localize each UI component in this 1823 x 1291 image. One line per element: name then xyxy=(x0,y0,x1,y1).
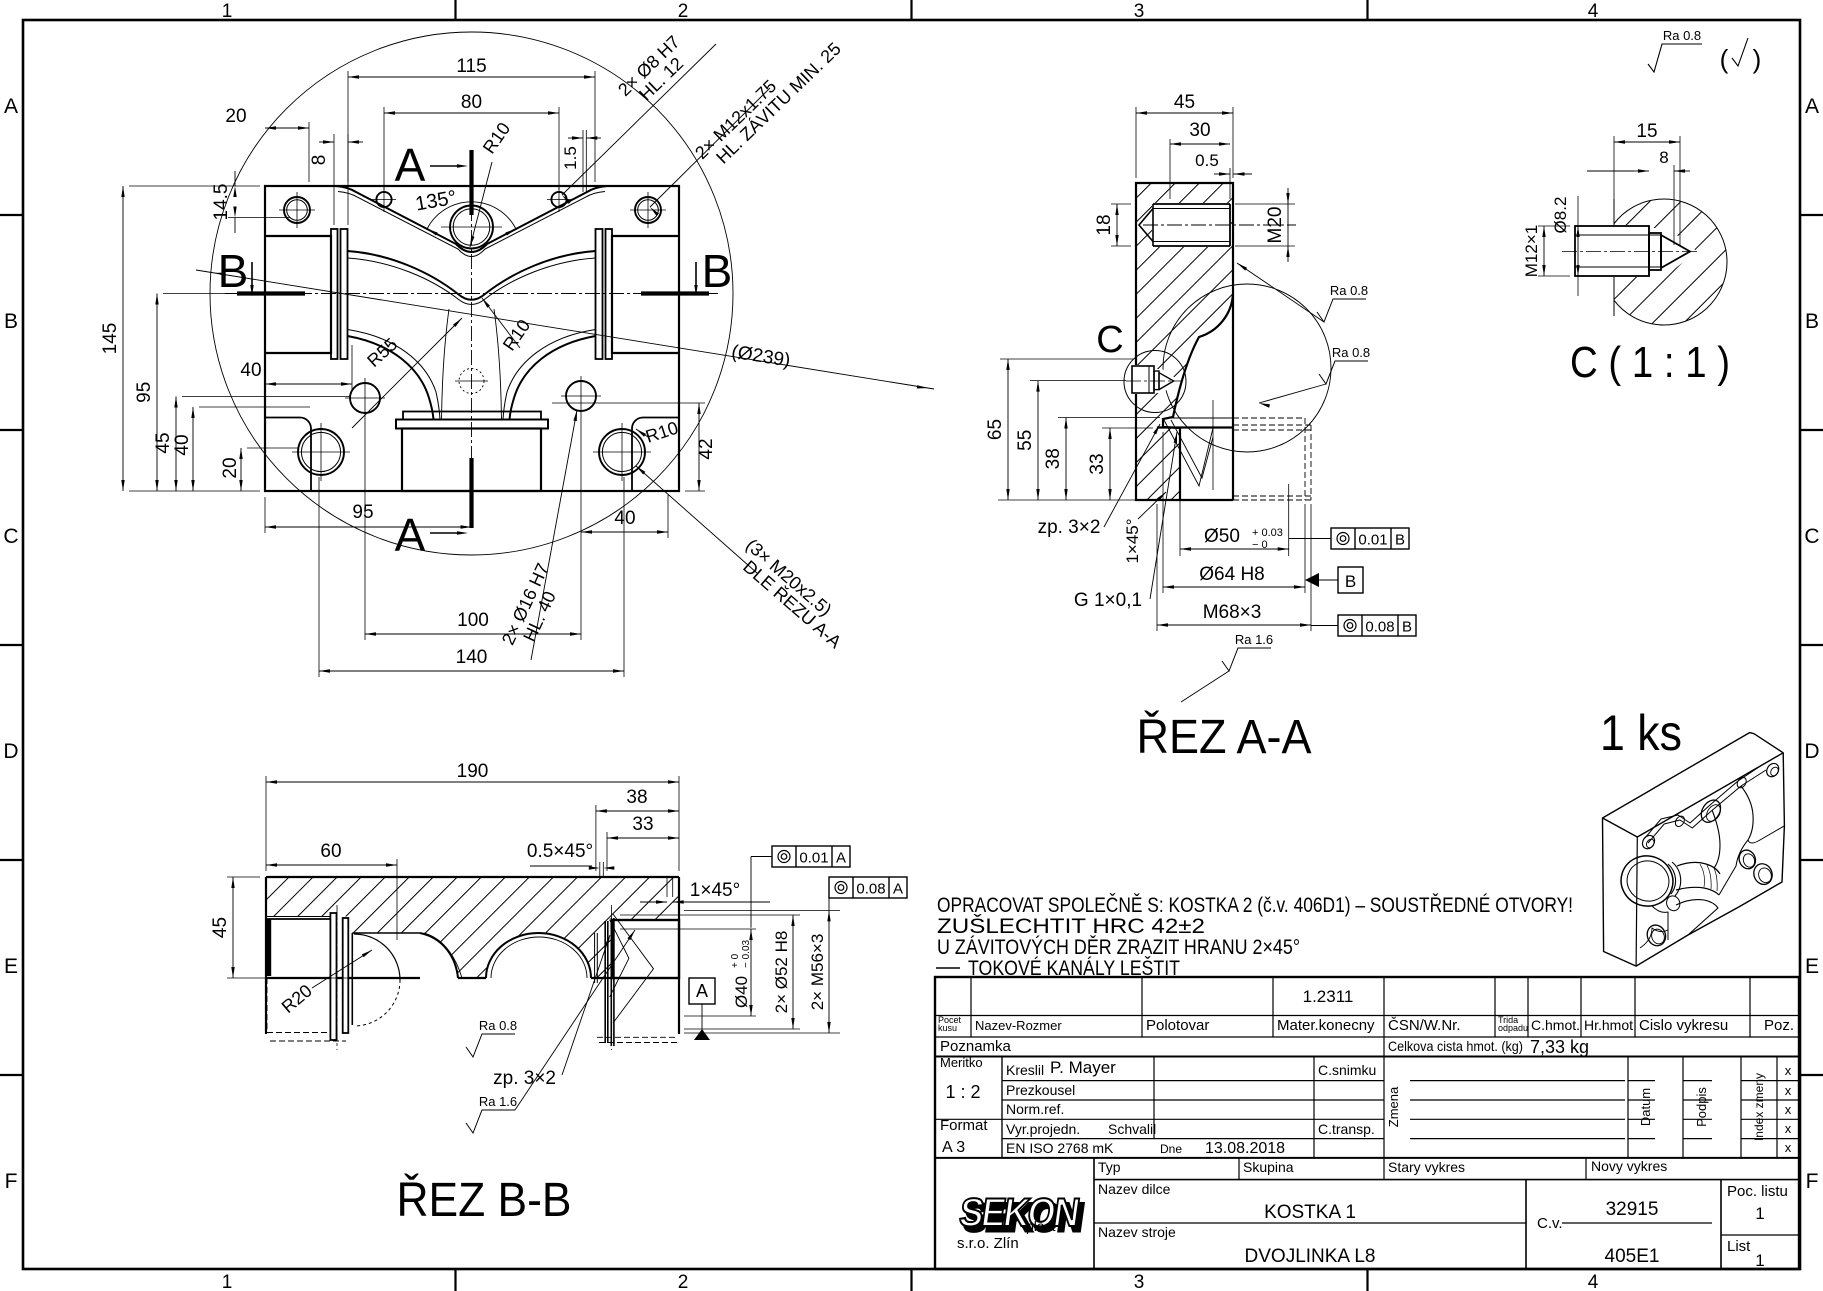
svg-text:1.5: 1.5 xyxy=(561,146,580,170)
svg-text:Nazev stroje: Nazev stroje xyxy=(1098,1224,1176,1240)
svg-text:0.08: 0.08 xyxy=(856,881,885,898)
svg-text:A 3: A 3 xyxy=(942,1139,965,1156)
svg-text:60: 60 xyxy=(320,841,341,862)
svg-text:20: 20 xyxy=(220,457,241,478)
svg-text:Ra 1.6: Ra 1.6 xyxy=(479,1094,517,1109)
svg-text:33: 33 xyxy=(1087,453,1108,474)
svg-text:Ra 0.8: Ra 0.8 xyxy=(1332,345,1370,360)
svg-text:DVOJLINKA L8: DVOJLINKA L8 xyxy=(1245,1246,1376,1267)
svg-text:45: 45 xyxy=(1174,92,1195,113)
svg-text:1.2311: 1.2311 xyxy=(1303,987,1354,1006)
svg-text:8: 8 xyxy=(309,155,330,166)
svg-text:Cislo vykresu: Cislo vykresu xyxy=(1639,1017,1728,1034)
svg-text:(: ( xyxy=(1720,44,1729,74)
svg-text:Ø8.2: Ø8.2 xyxy=(1551,197,1570,234)
svg-text:C.snimku: C.snimku xyxy=(1318,1062,1376,1078)
svg-text:1×45°: 1×45° xyxy=(1123,518,1142,563)
svg-text:1: 1 xyxy=(222,1272,233,1291)
svg-text:B: B xyxy=(1402,619,1412,636)
svg-text:B: B xyxy=(4,310,18,333)
svg-text:2: 2 xyxy=(678,1,689,22)
svg-text:1 ks: 1 ks xyxy=(1600,705,1682,761)
svg-text:C.transp.: C.transp. xyxy=(1318,1121,1375,1137)
svg-text:42: 42 xyxy=(696,438,717,459)
svg-text:M12×1: M12×1 xyxy=(1522,225,1541,277)
svg-text:x: x xyxy=(1785,1140,1792,1155)
svg-text:0.01: 0.01 xyxy=(1358,532,1387,549)
svg-text:Prezkousel: Prezkousel xyxy=(1006,1082,1075,1098)
svg-text:0.08: 0.08 xyxy=(1365,619,1394,636)
svg-text:65: 65 xyxy=(985,419,1006,440)
svg-text:plast: plast xyxy=(1026,1218,1056,1234)
svg-text:A: A xyxy=(4,95,18,118)
svg-text:115: 115 xyxy=(456,56,486,77)
svg-text:B: B xyxy=(1345,572,1356,591)
svg-text:0.5×45°: 0.5×45° xyxy=(527,841,593,862)
svg-text:D: D xyxy=(1804,740,1819,763)
svg-text:Poc. listu: Poc. listu xyxy=(1727,1183,1788,1200)
svg-text:190: 190 xyxy=(457,761,489,782)
svg-text:s.r.o. Zlín: s.r.o. Zlín xyxy=(957,1235,1019,1252)
svg-text:Format: Format xyxy=(940,1117,988,1134)
svg-text:zp. 3×2: zp. 3×2 xyxy=(493,1068,556,1089)
svg-text:E: E xyxy=(4,955,18,978)
svg-text:ZUŠLECHTIT HRC 42±2: ZUŠLECHTIT HRC 42±2 xyxy=(937,915,1205,938)
svg-text:C.v.: C.v. xyxy=(1537,1215,1563,1232)
svg-text:Norm.ref.: Norm.ref. xyxy=(1006,1101,1064,1117)
svg-text:38: 38 xyxy=(626,787,647,808)
svg-text:E: E xyxy=(1805,955,1819,978)
svg-text:Ø40: Ø40 xyxy=(732,976,751,1008)
svg-text:zp. 3×2: zp. 3×2 xyxy=(1038,517,1101,538)
svg-text:80: 80 xyxy=(461,92,482,113)
svg-text:40: 40 xyxy=(614,508,635,529)
svg-text:45: 45 xyxy=(153,432,174,453)
svg-text:Datum: Datum xyxy=(1638,1088,1653,1126)
svg-text:OPRACOVAT SPOLEČNĚ S: KOSTKA 2: OPRACOVAT SPOLEČNĚ S: KOSTKA 2 (č.v. 406… xyxy=(937,894,1573,917)
svg-text:odpadu: odpadu xyxy=(1498,1023,1528,1033)
svg-text:Kreslil: Kreslil xyxy=(1006,1062,1044,1078)
svg-text:Ra 1.6: Ra 1.6 xyxy=(1235,632,1273,647)
svg-text:ČSN/W.Nr.: ČSN/W.Nr. xyxy=(1388,1017,1461,1034)
svg-text:C: C xyxy=(1804,525,1819,548)
svg-text:Stary vykres: Stary vykres xyxy=(1388,1159,1465,1175)
svg-text:14.5: 14.5 xyxy=(211,184,232,221)
svg-text:List: List xyxy=(1727,1238,1751,1255)
svg-text:Zmena: Zmena xyxy=(1386,1086,1401,1127)
svg-text:Index zmeny: Index zmeny xyxy=(1752,1073,1766,1141)
svg-text:Ra 0.8: Ra 0.8 xyxy=(1663,28,1701,43)
svg-text:P. Mayer: P. Mayer xyxy=(1050,1058,1116,1077)
svg-text:SEKON: SEKON xyxy=(957,1190,1081,1235)
svg-text:C: C xyxy=(3,525,18,548)
svg-text:95: 95 xyxy=(134,382,155,403)
svg-text:EN ISO 2768 mK: EN ISO 2768 mK xyxy=(1006,1140,1114,1156)
svg-text:140: 140 xyxy=(456,647,488,668)
svg-text:Ra 0.8: Ra 0.8 xyxy=(479,1018,517,1033)
svg-text:Nazev-Rozmer: Nazev-Rozmer xyxy=(975,1018,1062,1033)
svg-text:405E1: 405E1 xyxy=(1605,1246,1660,1267)
svg-text:4: 4 xyxy=(1588,1272,1599,1291)
svg-text:13.08.2018: 13.08.2018 xyxy=(1205,1140,1285,1157)
svg-text:A: A xyxy=(395,139,426,191)
svg-text:): ) xyxy=(1753,44,1762,74)
svg-text:55: 55 xyxy=(1015,430,1036,451)
svg-text:2× M56×3: 2× M56×3 xyxy=(808,934,827,1011)
svg-text:Poznamka: Poznamka xyxy=(940,1038,1012,1055)
svg-text:Typ: Typ xyxy=(1098,1159,1121,1175)
svg-text:2: 2 xyxy=(678,1272,689,1291)
svg-text:ŘEZ A-A: ŘEZ A-A xyxy=(1137,711,1312,764)
svg-text:U ZÁVITOVÝCH DĚR ZRAZIT HRANU: U ZÁVITOVÝCH DĚR ZRAZIT HRANU 2×45° xyxy=(937,936,1300,959)
svg-text:1: 1 xyxy=(1755,1251,1764,1270)
svg-text:B: B xyxy=(1395,532,1405,549)
svg-text:x: x xyxy=(1785,1063,1792,1078)
svg-text:ŘEZ B-B: ŘEZ B-B xyxy=(397,1174,572,1227)
svg-text:C: C xyxy=(1096,319,1123,361)
svg-text:20: 20 xyxy=(225,106,246,127)
svg-text:38: 38 xyxy=(1043,448,1064,469)
svg-text:F: F xyxy=(5,1170,18,1193)
svg-text:40: 40 xyxy=(172,434,193,455)
svg-text:+ 0.03: + 0.03 xyxy=(1252,527,1283,539)
svg-text:8: 8 xyxy=(1659,148,1668,167)
svg-text:B: B xyxy=(702,245,733,297)
svg-text:Ø64 H8: Ø64 H8 xyxy=(1199,564,1264,585)
svg-text:145: 145 xyxy=(100,323,121,355)
svg-text:1 : 2: 1 : 2 xyxy=(945,1082,980,1102)
svg-text:Meritko: Meritko xyxy=(940,1055,983,1070)
svg-text:Vyr.projedn.: Vyr.projedn. xyxy=(1006,1121,1080,1137)
svg-text:33: 33 xyxy=(632,814,653,835)
svg-text:x: x xyxy=(1785,1083,1792,1098)
svg-text:40: 40 xyxy=(240,360,261,381)
svg-text:G 1×0,1: G 1×0,1 xyxy=(1074,590,1142,611)
svg-text:0.01: 0.01 xyxy=(799,850,828,867)
svg-text:18: 18 xyxy=(1094,214,1115,235)
svg-text:30: 30 xyxy=(1189,120,1210,141)
svg-text:32915: 32915 xyxy=(1606,1199,1659,1220)
svg-text:M20: M20 xyxy=(1265,207,1286,244)
svg-text:1: 1 xyxy=(222,1,233,22)
svg-text:A: A xyxy=(893,881,903,898)
svg-text:D: D xyxy=(3,740,18,763)
svg-text:B: B xyxy=(218,245,249,297)
svg-text:A: A xyxy=(395,509,426,561)
svg-text:Dne: Dne xyxy=(1160,1142,1182,1156)
svg-text:M68×3: M68×3 xyxy=(1203,602,1262,623)
svg-text:15: 15 xyxy=(1636,121,1657,142)
svg-text:Poz.: Poz. xyxy=(1764,1017,1794,1034)
svg-text:Skupina: Skupina xyxy=(1243,1159,1294,1175)
svg-text:Ø50: Ø50 xyxy=(1204,526,1240,547)
svg-text:− 0.03: − 0.03 xyxy=(741,939,752,968)
svg-text:45: 45 xyxy=(210,917,231,938)
svg-text:100: 100 xyxy=(457,610,489,631)
svg-text:4: 4 xyxy=(1588,1,1599,22)
svg-text:95: 95 xyxy=(352,502,373,523)
svg-text:+ 0: + 0 xyxy=(730,953,741,968)
svg-text:x: x xyxy=(1785,1121,1792,1136)
svg-text:F: F xyxy=(1806,1170,1819,1193)
svg-text:Nazev dilce: Nazev dilce xyxy=(1098,1181,1171,1197)
svg-text:x: x xyxy=(1785,1102,1792,1117)
svg-text:A: A xyxy=(696,981,708,1001)
svg-text:C.hmot.: C.hmot. xyxy=(1531,1017,1580,1033)
svg-text:A: A xyxy=(1805,95,1819,118)
svg-text:C ( 1 : 1 ): C ( 1 : 1 ) xyxy=(1570,338,1730,387)
svg-text:kusu: kusu xyxy=(938,1023,957,1033)
svg-text:Hr.hmot: Hr.hmot xyxy=(1584,1017,1633,1033)
svg-text:Podpis: Podpis xyxy=(1694,1087,1709,1127)
svg-text:Novy vykres: Novy vykres xyxy=(1591,1158,1667,1174)
svg-text:KOSTKA 1: KOSTKA 1 xyxy=(1264,1202,1356,1223)
svg-text:0.5: 0.5 xyxy=(1195,151,1219,170)
svg-text:7,33 kg: 7,33 kg xyxy=(1530,1037,1589,1057)
svg-text:1×45°: 1×45° xyxy=(690,880,740,901)
svg-text:2× Ø52 H8: 2× Ø52 H8 xyxy=(772,931,791,1014)
svg-text:Polotovar: Polotovar xyxy=(1146,1017,1209,1034)
svg-text:A: A xyxy=(836,850,846,867)
svg-text:Schvalil: Schvalil xyxy=(1108,1121,1156,1137)
svg-text:3: 3 xyxy=(1134,1272,1145,1291)
svg-text:B: B xyxy=(1805,310,1819,333)
svg-text:1: 1 xyxy=(1755,1204,1764,1223)
svg-text:3: 3 xyxy=(1134,1,1145,22)
svg-text:Celkova cista hmot. (kg): Celkova cista hmot. (kg) xyxy=(1388,1038,1523,1054)
svg-text:Mater.konecny: Mater.konecny xyxy=(1277,1017,1375,1034)
svg-text:− 0: − 0 xyxy=(1252,539,1268,551)
svg-text:Ra 0.8: Ra 0.8 xyxy=(1330,283,1368,298)
